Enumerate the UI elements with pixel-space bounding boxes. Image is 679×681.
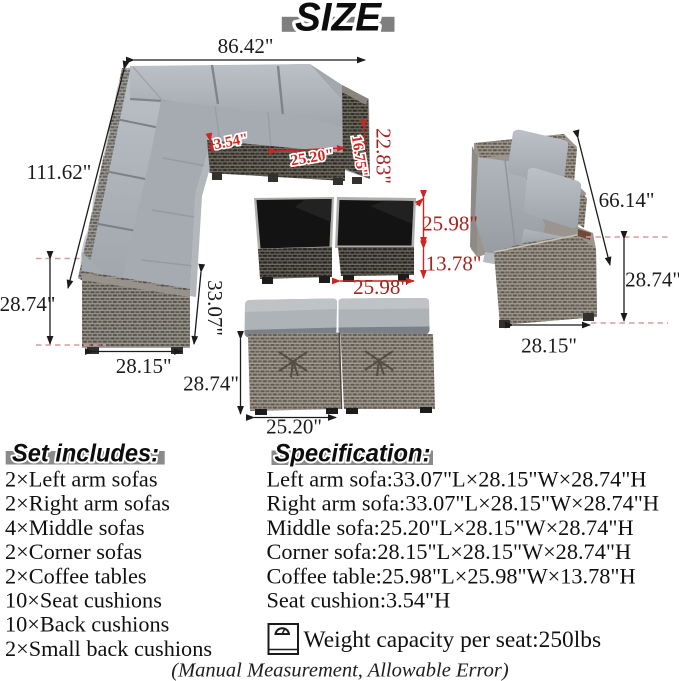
- svg-text:86.42": 86.42": [218, 34, 274, 58]
- svg-text:66.14": 66.14": [599, 188, 655, 212]
- svg-text:25.98": 25.98": [422, 212, 478, 236]
- svg-text:28.74": 28.74": [625, 268, 679, 292]
- svg-text:Seat cushion:3.54"H: Seat cushion:3.54"H: [267, 588, 451, 613]
- svg-text:111.62": 111.62": [27, 160, 92, 184]
- svg-text:Coffee table:25.98"L×25.98"W×1: Coffee table:25.98"L×25.98"W×13.78"H: [267, 563, 636, 588]
- svg-text:Set includes:: Set includes:: [12, 440, 159, 468]
- svg-text:2×Right arm sofas: 2×Right arm sofas: [5, 491, 170, 516]
- svg-text:Specification:: Specification:: [275, 440, 431, 468]
- svg-text:(Manual Measurement, Allowable: (Manual Measurement, Allowable Error): [171, 660, 509, 681]
- svg-text:10×Back cushions: 10×Back cushions: [5, 612, 169, 637]
- svg-text:10×Seat cushions: 10×Seat cushions: [5, 588, 162, 613]
- svg-text:2×Small back cushions: 2×Small back cushions: [5, 636, 212, 661]
- svg-text:25.98": 25.98": [353, 275, 409, 299]
- svg-text:28.74": 28.74": [183, 372, 239, 396]
- svg-text:28.15": 28.15": [116, 354, 172, 378]
- svg-text:2×Left arm sofas: 2×Left arm sofas: [5, 467, 158, 492]
- svg-text:13.78": 13.78": [426, 252, 482, 276]
- svg-text:Corner sofa:28.15"L×28.15"W×28: Corner sofa:28.15"L×28.15"W×28.74"H: [267, 539, 632, 564]
- svg-text:Right arm sofa:33.07"L×28.15"W: Right arm sofa:33.07"L×28.15"W×28.74"H: [267, 491, 659, 516]
- svg-text:4×Middle sofas: 4×Middle sofas: [5, 515, 145, 540]
- svg-text:Left arm sofa:33.07"L×28.15"W×: Left arm sofa:33.07"L×28.15"W×28.74"H: [267, 467, 647, 492]
- svg-text:28.74": 28.74": [0, 292, 55, 316]
- svg-text:33.07": 33.07": [203, 280, 227, 336]
- svg-text:25.20": 25.20": [266, 415, 322, 439]
- svg-text:2×Corner sofas: 2×Corner sofas: [5, 539, 142, 564]
- svg-text:Middle sofa:25.20"L×28.15"W×28: Middle sofa:25.20"L×28.15"W×28.74"H: [267, 515, 634, 540]
- svg-text:Weight capacity per seat:250lb: Weight capacity per seat:250lbs: [304, 627, 602, 653]
- svg-text:28.15": 28.15": [521, 334, 577, 358]
- svg-text:2×Coffee tables: 2×Coffee tables: [5, 563, 147, 588]
- svg-text:SIZE: SIZE: [295, 0, 382, 40]
- svg-text:22.83": 22.83": [372, 128, 396, 184]
